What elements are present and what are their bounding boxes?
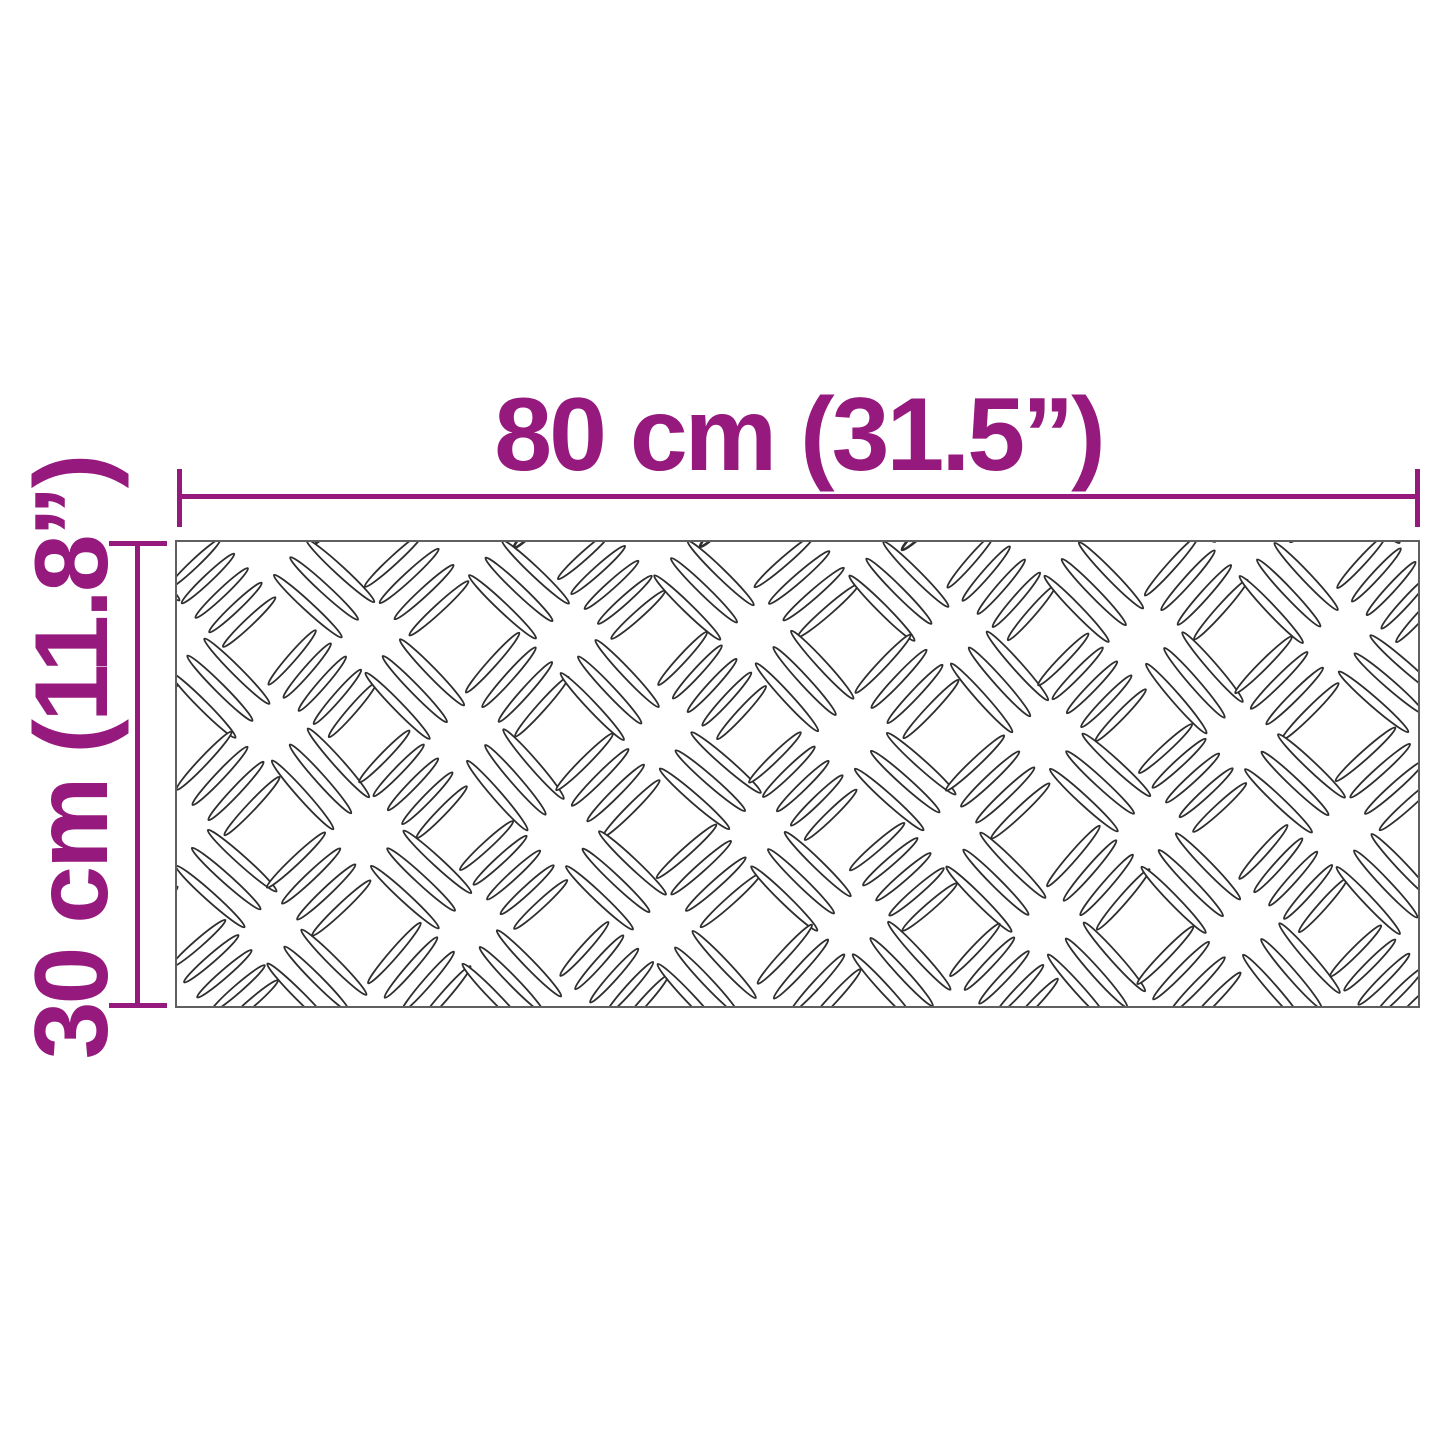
height-label: 30 cm (11.8”) [20,448,124,1068]
checker-plate-panel [175,540,1420,1008]
width-label: 80 cm (31.5”) [177,383,1420,487]
height-dimension-line [135,541,140,1007]
width-dimension-line [177,494,1420,499]
product-dimension-diagram: 80 cm (31.5”) 30 cm (11.8”) [0,0,1445,1445]
